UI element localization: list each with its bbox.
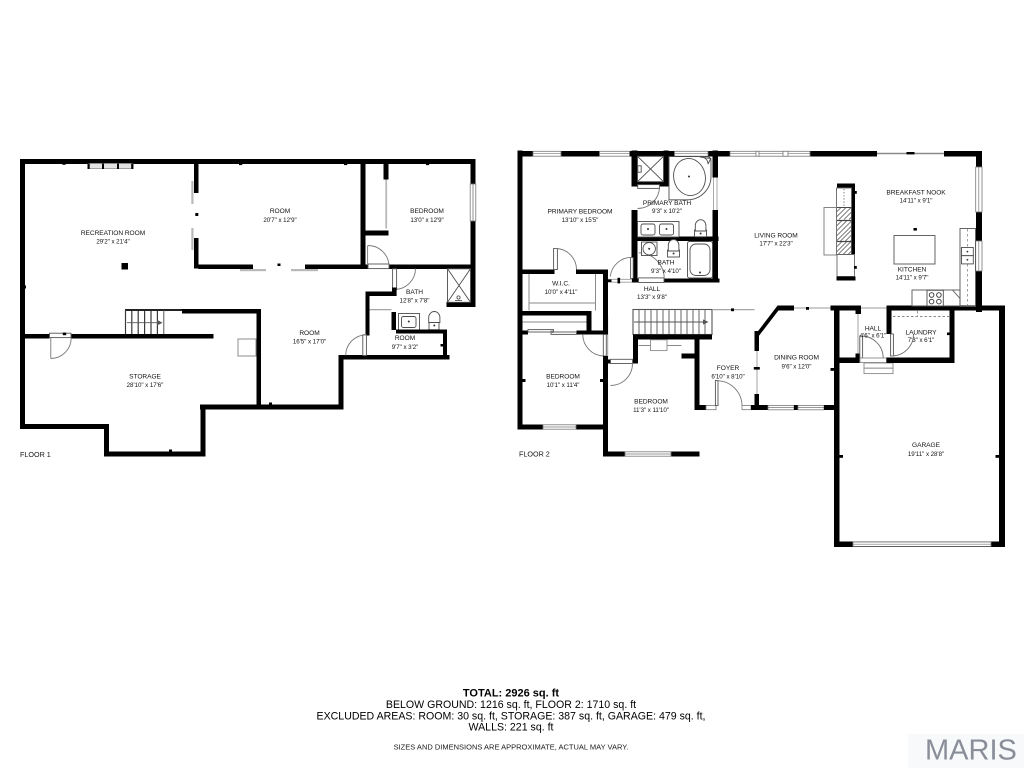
svg-text:MARIS: MARIS: [925, 735, 1017, 767]
svg-text:ROOM: ROOM: [395, 335, 415, 342]
svg-text:13'3" x 9'8": 13'3" x 9'8": [637, 294, 667, 301]
svg-text:ROOM: ROOM: [299, 330, 319, 337]
svg-text:9'3" x 4'10": 9'3" x 4'10": [651, 268, 681, 275]
svg-text:14'11" x 9'1": 14'11" x 9'1": [900, 198, 933, 205]
svg-text:GARAGE: GARAGE: [912, 442, 941, 449]
svg-text:13'10" x 15'5": 13'10" x 15'5": [562, 217, 599, 224]
svg-text:9'6" x 12'0": 9'6" x 12'0": [782, 364, 812, 371]
svg-text:17'7" x 22'3": 17'7" x 22'3": [759, 241, 792, 248]
svg-text:19'11" x 28'8": 19'11" x 28'8": [908, 451, 944, 458]
svg-text:RECREATION ROOM: RECREATION ROOM: [81, 230, 145, 237]
svg-text:20'7" x 12'9": 20'7" x 12'9": [263, 217, 296, 224]
svg-text:29'2" x 21'4": 29'2" x 21'4": [96, 239, 129, 246]
svg-text:28'10" x 17'6": 28'10" x 17'6": [127, 382, 164, 389]
svg-text:BEDROOM: BEDROOM: [410, 208, 444, 215]
svg-text:SIZES AND DIMENSIONS ARE APPRO: SIZES AND DIMENSIONS ARE APPROXIMATE, AC…: [394, 743, 629, 752]
svg-text:11'3" x 11'10": 11'3" x 11'10": [633, 407, 669, 414]
svg-text:4'6" x 6'1": 4'6" x 6'1": [860, 333, 887, 340]
svg-text:HALL: HALL: [865, 326, 882, 333]
svg-text:10'1" x 11'4": 10'1" x 11'4": [547, 382, 580, 389]
svg-text:DINING ROOM: DINING ROOM: [774, 355, 819, 362]
svg-text:16'5" x 17'0": 16'5" x 17'0": [293, 339, 326, 346]
svg-text:14'11" x 9'7": 14'11" x 9'7": [896, 275, 929, 282]
svg-text:PRIMARY BEDROOM: PRIMARY BEDROOM: [548, 209, 613, 216]
svg-text:LAUNDRY: LAUNDRY: [905, 330, 937, 337]
svg-text:FLOOR 1: FLOOR 1: [20, 450, 51, 459]
svg-text:FLOOR 2: FLOOR 2: [519, 450, 550, 459]
svg-text:STORAGE: STORAGE: [129, 374, 161, 381]
svg-text:BELOW GROUND: 1216 sq. ft, FLO: BELOW GROUND: 1216 sq. ft, FLOOR 2: 1710…: [386, 699, 636, 711]
svg-text:ROOM: ROOM: [270, 208, 290, 215]
svg-text:9'3" x 10'2": 9'3" x 10'2": [652, 208, 682, 215]
svg-text:HALL: HALL: [644, 286, 661, 293]
svg-text:13'0" x 12'9": 13'0" x 12'9": [410, 217, 443, 224]
svg-text:10'0" x 4'11": 10'0" x 4'11": [545, 289, 578, 296]
svg-text:W.I.C.: W.I.C.: [552, 281, 570, 288]
svg-text:9'7" x 3'2": 9'7" x 3'2": [392, 344, 419, 351]
svg-text:FOYER: FOYER: [717, 365, 740, 372]
svg-text:BEDROOM: BEDROOM: [546, 374, 580, 381]
svg-text:12'8" x 7'8": 12'8" x 7'8": [400, 298, 430, 305]
svg-text:7'3" x 6'1": 7'3" x 6'1": [908, 337, 935, 344]
svg-text:TOTAL: 2926 sq. ft: TOTAL: 2926 sq. ft: [463, 688, 560, 700]
svg-text:WALLS: 221 sq. ft: WALLS: 221 sq. ft: [469, 721, 554, 733]
svg-text:6'10" x 8'10": 6'10" x 8'10": [711, 374, 744, 381]
svg-text:BATH: BATH: [406, 289, 423, 296]
svg-text:PRIMARY BATH: PRIMARY BATH: [643, 200, 691, 207]
svg-text:BEDROOM: BEDROOM: [634, 399, 668, 406]
svg-text:LIVING ROOM: LIVING ROOM: [754, 233, 797, 240]
svg-text:BREAKFAST NOOK: BREAKFAST NOOK: [886, 190, 946, 197]
svg-text:KITCHEN: KITCHEN: [898, 267, 927, 274]
svg-text:BATH: BATH: [658, 260, 675, 267]
